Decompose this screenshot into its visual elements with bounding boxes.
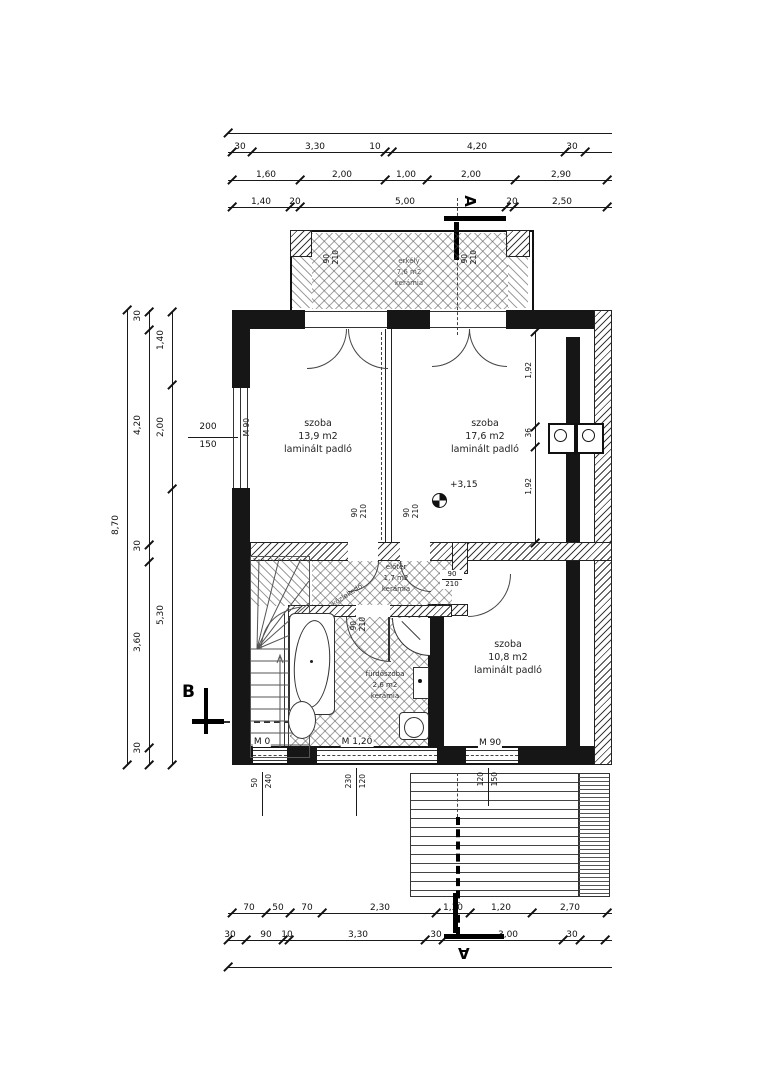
door-threshold (430, 327, 506, 328)
dim-label: 5,30 (156, 605, 166, 625)
door-opening (356, 605, 390, 617)
deck (410, 773, 580, 897)
room-finish: laminált padló (474, 665, 542, 676)
window-width-label: 120 (476, 772, 485, 786)
section-a-letter: A (461, 195, 479, 207)
door-swing-arc (468, 574, 511, 617)
dim-line (228, 207, 612, 208)
wall (387, 310, 430, 329)
window-sill-label: M 90 (478, 738, 502, 748)
dim-label: 50 (271, 903, 284, 913)
dim-label: 2,70 (559, 903, 581, 913)
window-width-label: 200 (198, 422, 217, 432)
dim-label: 3,60 (133, 632, 143, 652)
room-area: 10,8 m2 (488, 652, 527, 663)
door-threshold (430, 311, 506, 312)
section-a-bold-line (453, 893, 458, 933)
door-size-fraction: 90 210 (440, 570, 464, 589)
wall (428, 604, 444, 746)
dim-label: 1,92 (524, 362, 533, 379)
door-opening (348, 542, 378, 561)
room-name: szoba (304, 418, 332, 429)
balcony-corner-pier (290, 230, 312, 257)
window-glass-line (240, 388, 241, 488)
radiator-valve (418, 679, 422, 683)
dim-label: 1,60 (255, 170, 277, 180)
door-size-label: 90 (322, 254, 331, 264)
room-name: erkély (398, 257, 419, 265)
dim-label: 30 (133, 540, 143, 551)
section-a-bold-bar (444, 934, 504, 939)
dim-label: 2,30 (369, 903, 391, 913)
window-glass-line (233, 388, 234, 488)
room-name: előtér (386, 563, 406, 571)
door-size-label: 210 (331, 250, 340, 264)
dim-label: 1,92 (524, 478, 533, 495)
dim-line (228, 913, 612, 914)
dim-label: 3,30 (347, 930, 369, 940)
door-swing-arc (432, 329, 470, 367)
door-size-label: 210 (469, 250, 478, 264)
room-label-balcony: erkély 7,6 m2 kerámia (395, 256, 423, 289)
toilet-bowl (404, 717, 424, 738)
room-area: 13,9 m2 (298, 431, 337, 442)
dim-label: 1,40 (156, 330, 166, 350)
section-b-bold-line (204, 688, 208, 734)
level-marker-icon (432, 493, 447, 508)
room-finish: kerámia (382, 585, 410, 593)
window-glass-line (466, 760, 518, 761)
wall (232, 488, 250, 765)
section-b-bold-bar (192, 719, 224, 724)
room-name: fürdőszoba (366, 670, 405, 678)
dim-label: 4,20 (133, 415, 143, 435)
section-a-bold-bar (444, 216, 506, 221)
room-label-szoba-right: szoba 17,6 m2 laminált padló (451, 417, 519, 456)
room-name: szoba (494, 639, 522, 650)
window-width-label: 50 (250, 778, 259, 788)
wall (232, 310, 250, 388)
room-label-szoba-left: szoba 13,9 m2 laminált padló (284, 417, 352, 456)
deck-edge-strip (578, 773, 610, 897)
door-size-label: 90 (402, 508, 411, 518)
room-finish: laminált padló (451, 444, 519, 455)
room-finish: kerámia (395, 279, 423, 287)
window-glass-line (317, 760, 437, 761)
dim-label: 4,20 (466, 142, 488, 152)
dim-label: 3,30 (304, 142, 326, 152)
dim-label: 36 (524, 428, 533, 438)
dim-line (228, 152, 612, 153)
section-a-letter: A (458, 944, 470, 962)
window-height-label: 150 (198, 440, 217, 450)
dim-label: 5,00 (394, 197, 416, 207)
wall (594, 310, 612, 765)
section-b-letter: B (182, 682, 195, 702)
door-threshold (305, 327, 387, 328)
dim-line (127, 310, 128, 765)
section-line-a (457, 773, 458, 817)
room-finish: laminált padló (284, 444, 352, 455)
door-size-label: 210 (358, 617, 367, 631)
window-width-label: 230 (344, 774, 353, 788)
window-sill-label: M 1,20 (341, 737, 374, 747)
door-leaf (388, 617, 390, 661)
dim-label: 2,00 (460, 170, 482, 180)
door-size-label: 90 (350, 508, 359, 518)
door-size-label: 210 (359, 504, 368, 518)
window-glass-line (466, 750, 518, 751)
door-height: 210 (445, 580, 458, 588)
dim-label: 70 (300, 903, 313, 913)
window-glass-line (253, 760, 287, 761)
door-width: 90 (448, 570, 457, 578)
dim-label: 2,90 (550, 170, 572, 180)
fraction-line (488, 768, 489, 806)
dim-label: 8,70 (111, 515, 121, 535)
dim-label: 90 (259, 930, 272, 940)
door-swing-arc (469, 329, 507, 367)
room-label-bathroom: fürdőszoba 2,6 m2 kerámia (366, 669, 405, 702)
flue-pipe (582, 429, 595, 442)
door-size-label: 90 (460, 254, 469, 264)
room-area: 1,7 m2 (384, 574, 409, 582)
dim-label: 2,50 (551, 197, 573, 207)
dim-line (228, 133, 612, 134)
dim-label: 30 (133, 310, 143, 321)
room-name: szoba (471, 418, 499, 429)
bathtub-drain (310, 660, 313, 663)
door-swing-arc (307, 329, 347, 369)
dim-label: 1,20 (490, 903, 512, 913)
window-sill-label: M 0 (253, 737, 271, 747)
dim-line (172, 312, 173, 765)
dim-label: 2,00 (331, 170, 353, 180)
washbasin (288, 701, 316, 739)
dim-label: 1,40 (250, 197, 272, 207)
dim-label: 30 (133, 742, 143, 753)
window-height-label: 240 (264, 774, 273, 788)
door-size-label: 90 (349, 621, 358, 631)
level-marker-value: +3,15 (450, 480, 478, 490)
room-area: 7,6 m2 (397, 268, 422, 276)
dim-label: 2,00 (156, 417, 166, 437)
room-label-szoba-small: szoba 10,8 m2 laminált padló (474, 638, 542, 677)
fraction-line (356, 768, 357, 816)
window-height-label: 150 (490, 772, 499, 786)
dim-label: 30 (429, 930, 442, 940)
room-label-hall: előtér 1,7 m2 kerámia (382, 562, 410, 595)
room-area: 2,6 m2 (373, 681, 398, 689)
door-opening (400, 542, 430, 561)
window-dashed-line (466, 755, 518, 756)
dim-label: 1,00 (395, 170, 417, 180)
dim-label: 10 (368, 142, 381, 152)
door-swing-arc (348, 329, 388, 369)
door-size-label: 210 (411, 504, 420, 518)
radiator (413, 667, 429, 699)
window-height-label: 120 (358, 774, 367, 788)
dim-label: 70 (242, 903, 255, 913)
dim-line (535, 332, 536, 543)
room-finish: kerámia (371, 692, 399, 700)
fraction-line (188, 437, 238, 438)
window-dashed-line (317, 755, 437, 756)
door-threshold (305, 311, 387, 312)
dim-line (228, 967, 612, 968)
window-glass-line (247, 388, 248, 488)
flue-pipe (554, 429, 567, 442)
dim-line (149, 310, 150, 765)
fraction-line (262, 772, 263, 816)
dim-line (228, 180, 612, 181)
room-area: 17,6 m2 (465, 431, 504, 442)
floor-plan-canvas: 30 3,30 10 4,20 30 1,60 2,00 1,00 2,00 2… (0, 0, 763, 1080)
window-glass-line (317, 750, 437, 751)
balcony-corner-pier (506, 230, 530, 257)
